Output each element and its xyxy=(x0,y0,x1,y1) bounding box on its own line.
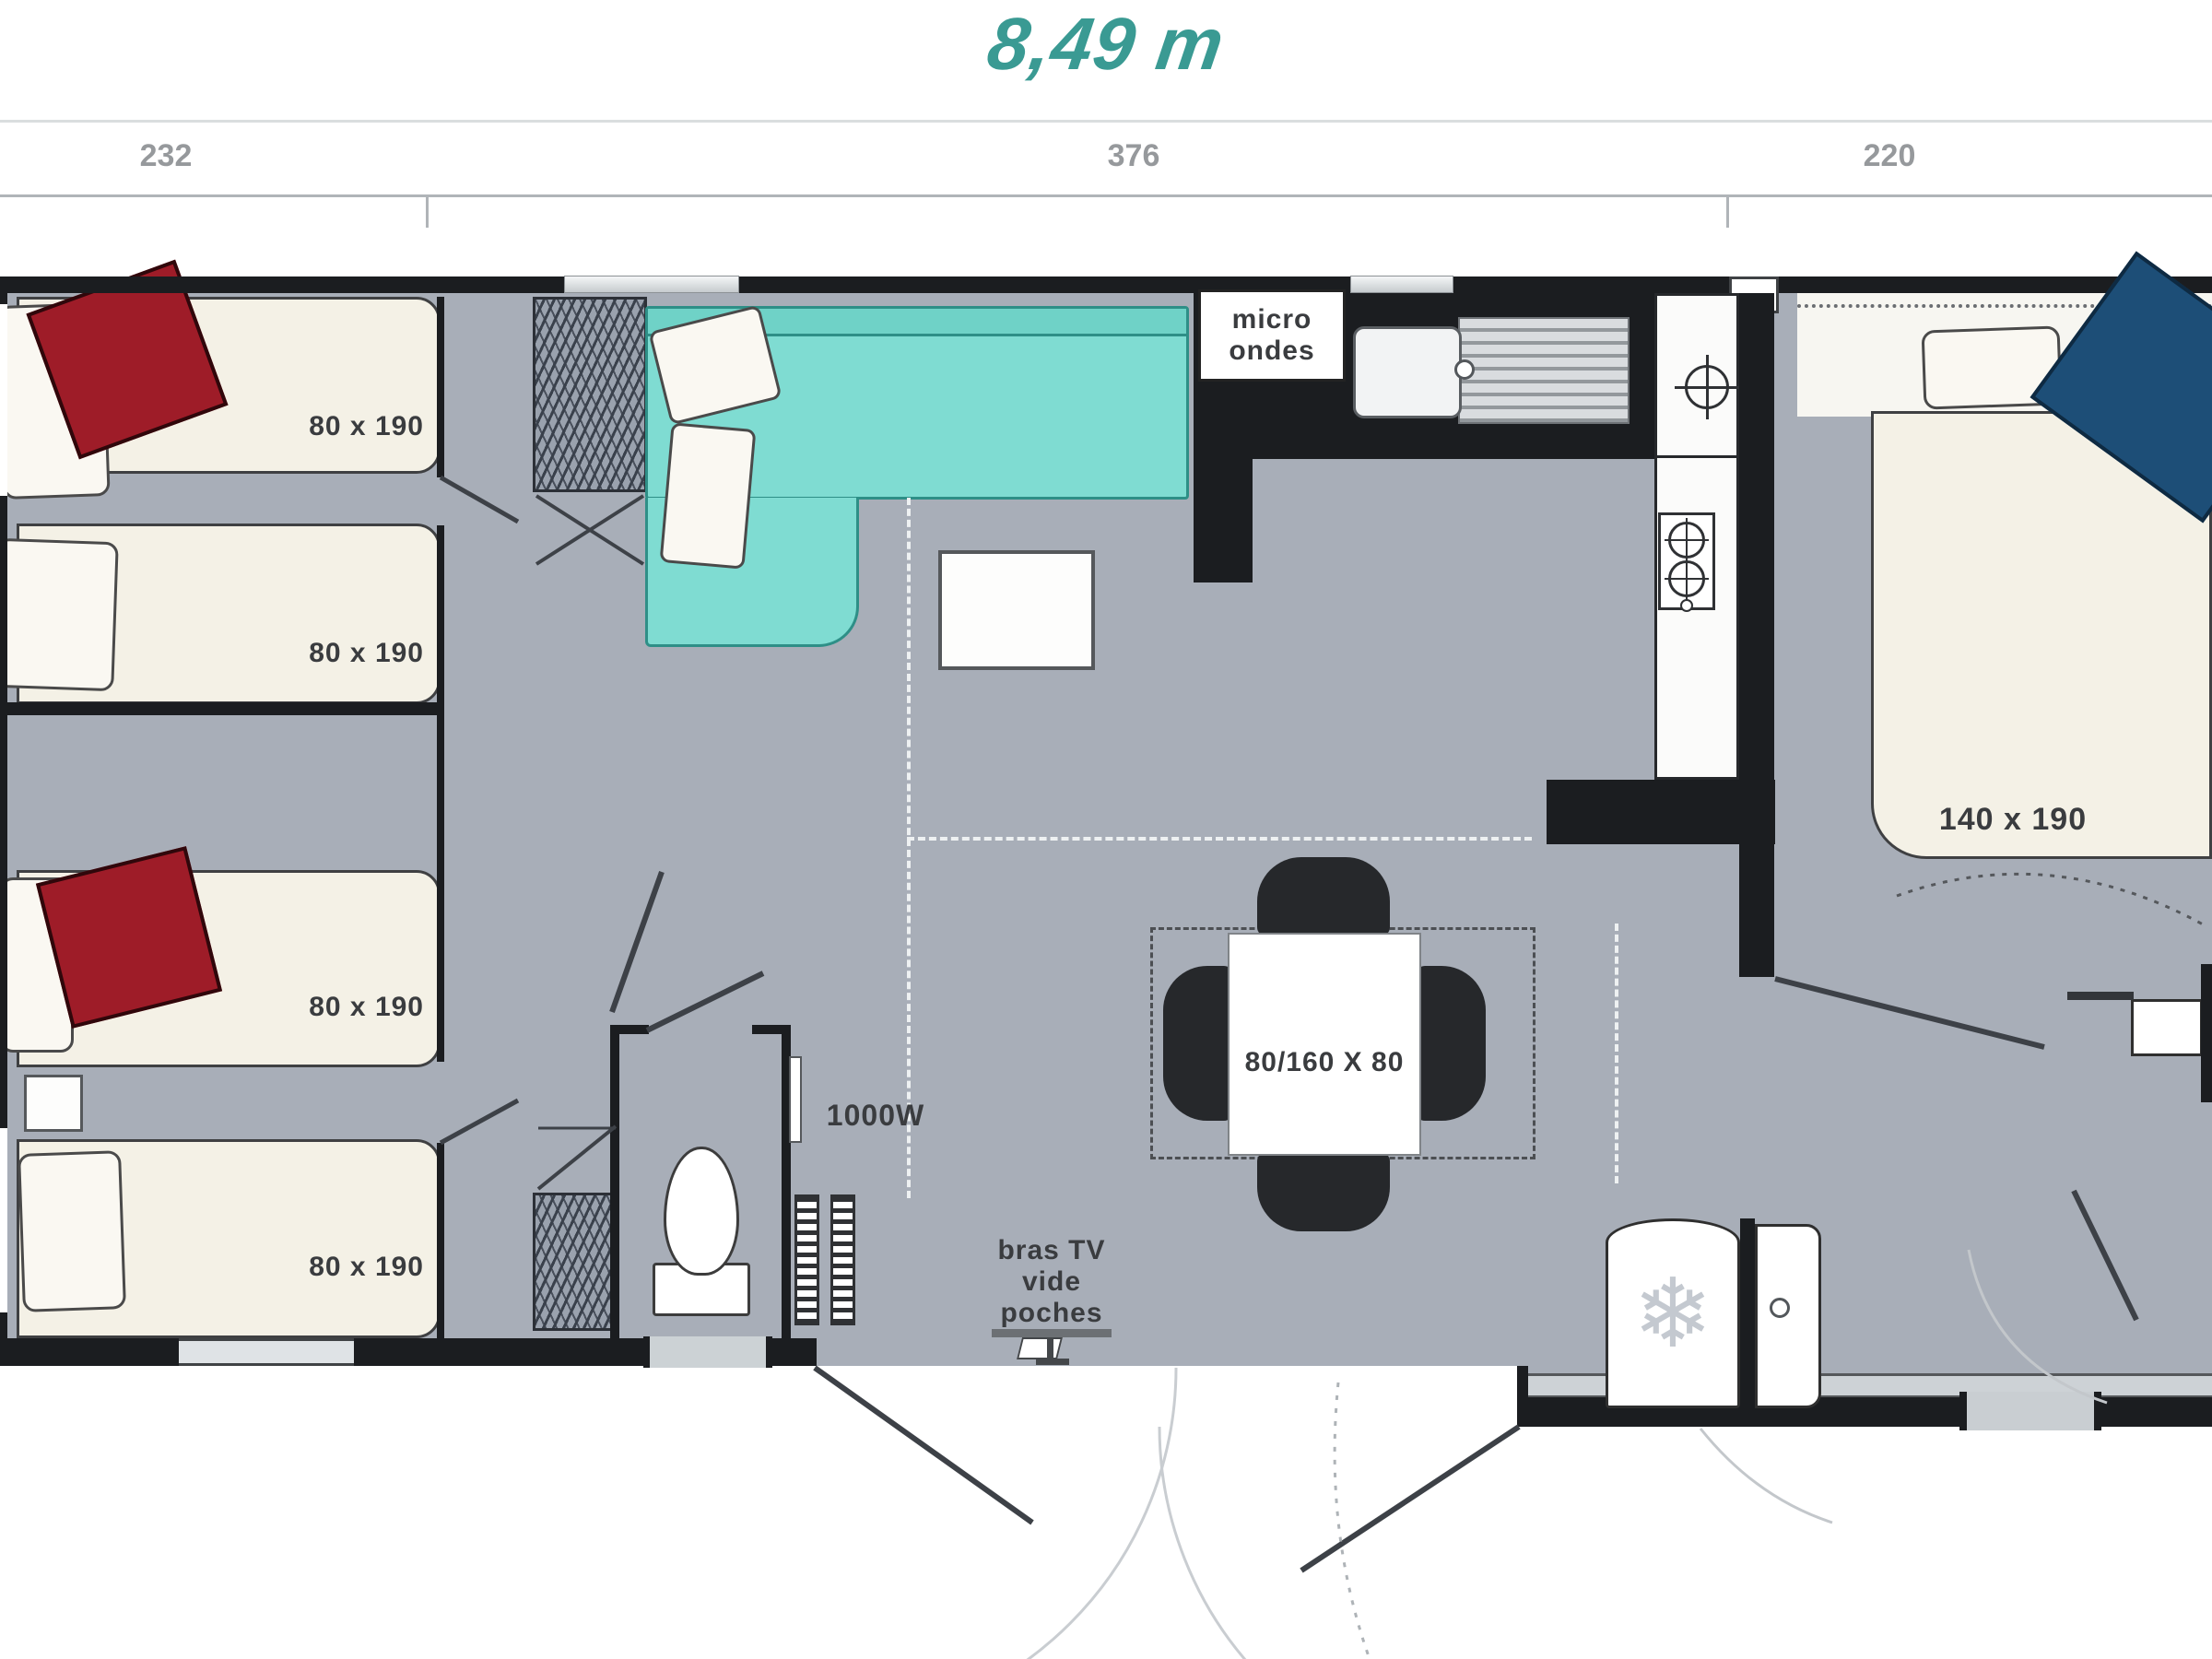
microwave-box: micro ondes xyxy=(1198,289,1346,382)
entry-door-arc-left xyxy=(815,1368,1176,1659)
bed-1-size-label: 80 x 190 xyxy=(221,411,424,442)
right-bedroom-door-arc xyxy=(1897,874,2205,925)
dining-table-size-label: 80/160 X 80 xyxy=(1245,1047,1405,1078)
bathroom-door-arc xyxy=(1969,1250,2107,1403)
wc-door-leaf xyxy=(647,973,763,1030)
wardrobe-bottom-flap xyxy=(538,1126,616,1189)
bed-3-size-label: 80 x 190 xyxy=(221,992,424,1023)
side-door-arc xyxy=(1700,1429,1832,1523)
bed-4-size-label: 80 x 190 xyxy=(221,1252,424,1283)
double-bed-size-label: 140 x 190 xyxy=(1893,802,2133,838)
heater-power-label: 1000W xyxy=(783,1099,968,1133)
right-bedroom-door-leaf xyxy=(1775,979,2044,1047)
dining-table: 80/160 X 80 xyxy=(1228,933,1421,1156)
tv-arm-label-line3: poches xyxy=(959,1298,1144,1329)
bed-2-size-label: 80 x 190 xyxy=(221,638,424,669)
tv-arm-label-line2: vide xyxy=(959,1266,1144,1298)
bedroom2-door-leaf xyxy=(441,1100,518,1143)
bedroom1-door-leaf xyxy=(441,477,518,522)
corridor-angled-wall xyxy=(612,872,662,1012)
microwave-label-line1: micro xyxy=(1232,304,1312,335)
microwave-label-line2: ondes xyxy=(1229,335,1314,367)
bathroom-door-leaf xyxy=(2074,1191,2136,1320)
tv-arm-label-line1: bras TV xyxy=(959,1235,1144,1266)
entry-door-leaf-left xyxy=(815,1368,1032,1523)
entry-door-dashed-arc xyxy=(1335,1382,1370,1659)
plan-linework xyxy=(0,0,2212,1659)
